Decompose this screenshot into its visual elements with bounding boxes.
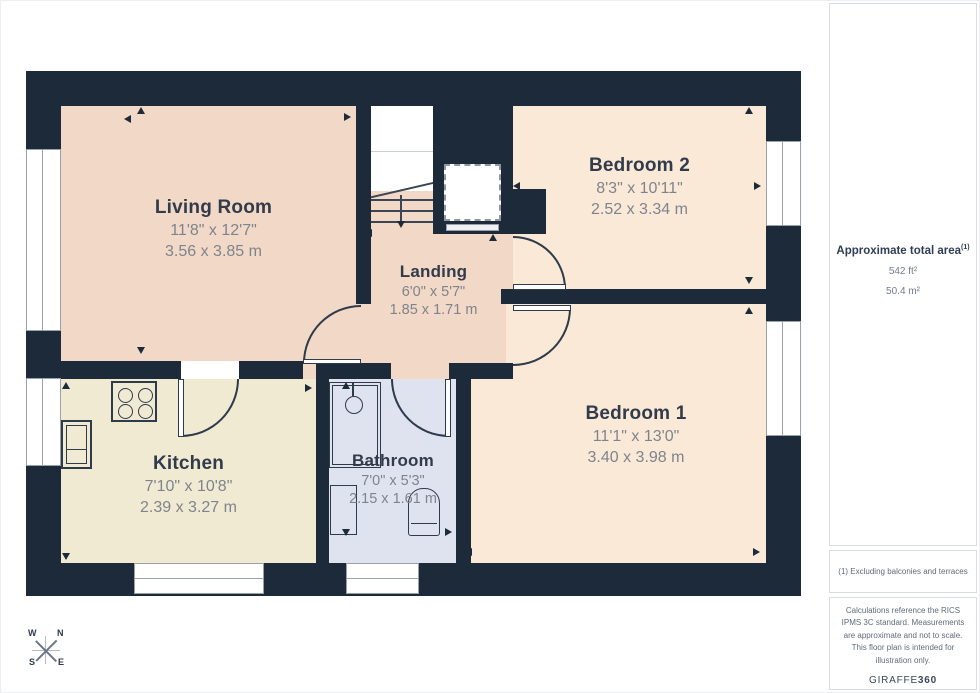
hob bbox=[111, 381, 157, 422]
kitchen-sink bbox=[61, 420, 92, 469]
wall bbox=[316, 379, 329, 563]
giraffe360-logo: GIRAFFE360 bbox=[839, 675, 967, 686]
total-area-label: Approximate total area(1) bbox=[830, 244, 976, 257]
brand-suffix: 360 bbox=[918, 675, 937, 686]
dimension-arrow bbox=[342, 529, 350, 536]
window bbox=[26, 149, 61, 331]
dimension-arrow bbox=[137, 107, 145, 114]
stair-tread bbox=[371, 151, 433, 152]
wall bbox=[449, 363, 513, 379]
window bbox=[766, 141, 801, 226]
footnote-panel: (1) Excluding balconies and terraces bbox=[829, 550, 977, 593]
footnote-ref: (1) bbox=[961, 244, 970, 251]
dimension-arrow bbox=[445, 528, 452, 536]
window bbox=[134, 563, 264, 594]
dimension-arrow bbox=[753, 548, 760, 556]
bathroom-door bbox=[445, 379, 451, 437]
window bbox=[26, 378, 61, 466]
compass: W N S E bbox=[16, 623, 78, 679]
wall bbox=[456, 379, 471, 563]
total-area-m: 50.4 m² bbox=[830, 286, 976, 297]
kitchen-door bbox=[178, 379, 184, 437]
wall bbox=[239, 361, 303, 379]
dimension-arrow bbox=[344, 113, 351, 121]
room-bedroom-1 bbox=[471, 379, 766, 563]
hob-burner bbox=[118, 404, 133, 419]
dimension-arrow bbox=[513, 182, 520, 190]
dimension-arrow bbox=[62, 553, 70, 560]
washbasin bbox=[345, 396, 363, 414]
hob-burner bbox=[138, 404, 153, 419]
dimension-arrow bbox=[745, 107, 753, 114]
total-area-ft: 542 ft² bbox=[830, 266, 976, 277]
wall bbox=[501, 289, 766, 304]
shower bbox=[329, 382, 381, 468]
dimension-arrow bbox=[137, 347, 145, 354]
compass-south-label: S bbox=[29, 657, 35, 667]
stair-direction-line bbox=[400, 195, 402, 221]
dimension-arrow bbox=[62, 382, 70, 389]
dimension-arrow bbox=[365, 229, 372, 237]
footnote-text: (1) Excluding balconies and terraces bbox=[838, 567, 967, 576]
wall bbox=[356, 106, 371, 304]
dimension-arrow bbox=[305, 384, 312, 392]
stair-down-arrow-icon bbox=[397, 221, 405, 228]
dimension-arrow bbox=[745, 277, 753, 284]
dimension-arrow bbox=[124, 115, 131, 123]
dimension-arrow bbox=[465, 548, 472, 556]
total-area-panel: Approximate total area(1) 542 ft² 50.4 m… bbox=[829, 3, 977, 546]
washbasin-tap bbox=[352, 382, 354, 396]
bedroom-1-door bbox=[513, 305, 571, 311]
living-room-door bbox=[303, 359, 361, 364]
disclaimer-text: Calculations reference the RICS IPMS 3C … bbox=[839, 605, 967, 667]
toilet bbox=[408, 488, 440, 536]
wall bbox=[316, 363, 391, 379]
wall bbox=[61, 361, 181, 379]
bathroom-cabinet bbox=[330, 485, 357, 535]
compass-west-label: W bbox=[28, 628, 37, 638]
hob-burner bbox=[138, 388, 153, 403]
compass-east-label: E bbox=[58, 657, 64, 667]
landing-window bbox=[446, 224, 499, 231]
dimension-arrow bbox=[754, 182, 761, 190]
dimension-arrow bbox=[745, 307, 753, 314]
stair-tread bbox=[371, 210, 433, 212]
dimension-arrow bbox=[342, 382, 350, 389]
compass-north-label: N bbox=[57, 628, 64, 638]
wall bbox=[26, 71, 801, 106]
disclaimer-panel: Calculations reference the RICS IPMS 3C … bbox=[829, 597, 977, 690]
stair-tread bbox=[371, 199, 433, 201]
brand-name: GIRAFFE bbox=[869, 675, 918, 686]
floor-plan-page: Living Room 11'8" x 12'7" 3.56 x 3.85 m … bbox=[0, 0, 980, 693]
window bbox=[346, 563, 419, 594]
stairwell-void bbox=[371, 106, 433, 191]
roof-window bbox=[444, 164, 501, 221]
bedroom-2-door bbox=[513, 284, 566, 290]
dimension-arrow bbox=[489, 234, 497, 241]
wall bbox=[513, 189, 546, 234]
window bbox=[766, 321, 801, 436]
hob-burner bbox=[118, 388, 133, 403]
